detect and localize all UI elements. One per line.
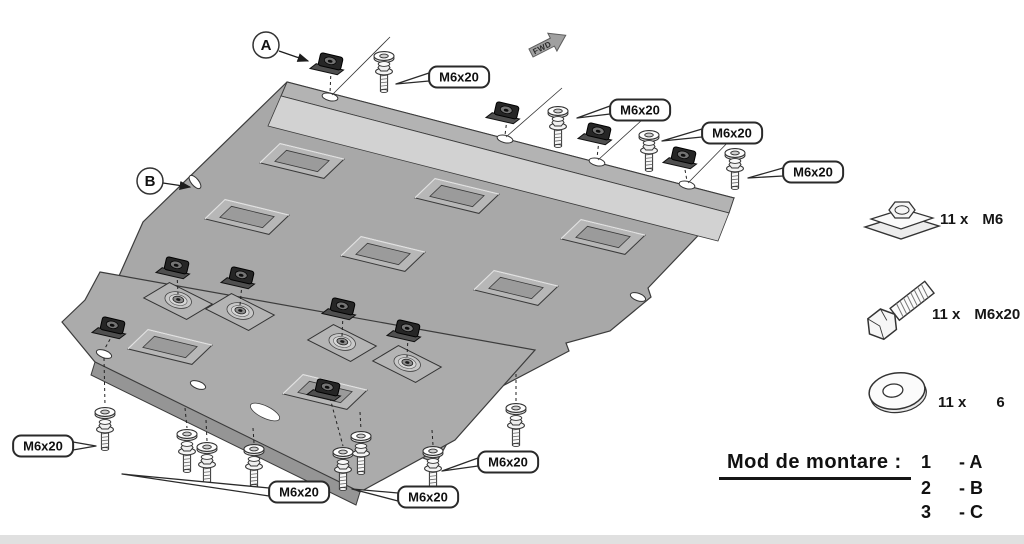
- bolt: [508, 416, 525, 447]
- mounting-step: 3: [921, 502, 959, 523]
- bolt: [641, 141, 658, 172]
- part-label-arrow: [279, 51, 308, 61]
- mounting-step: 2: [921, 478, 959, 499]
- mounting-title-underline: [719, 477, 911, 480]
- mounting-step: 1: [921, 452, 959, 473]
- direction-arrow-fwd: FWD: [526, 26, 570, 62]
- clip-nut: [578, 121, 614, 146]
- mounting-row-2: 2- B: [921, 478, 983, 499]
- fastener-callout: M6x20: [609, 99, 671, 122]
- bolt: [727, 159, 744, 190]
- bolt: [246, 457, 263, 488]
- mounting-row-1: 1- A: [921, 452, 982, 473]
- callout-tail: [73, 442, 96, 450]
- legend-washer-icon: [867, 369, 929, 416]
- bolt: [376, 62, 393, 93]
- washer: [423, 447, 443, 458]
- fastener-callout: M6x20: [12, 435, 74, 458]
- bolt: [97, 420, 114, 451]
- legend-size: 6: [966, 394, 1004, 411]
- fastener-callout: M6x20: [397, 486, 459, 509]
- washer: [95, 408, 115, 419]
- legend-qty: 11 x: [940, 211, 968, 228]
- legend-clip-nut-icon: [865, 202, 939, 239]
- legend-size: M6x20: [960, 306, 1020, 323]
- legend-qty: 11 x: [932, 306, 960, 323]
- fastener-callout: M6x20: [701, 122, 763, 145]
- fastener-callout: M6x20: [782, 161, 844, 184]
- part-label-letter: A: [261, 37, 272, 54]
- scan-edge-strip: [0, 535, 1024, 544]
- fastener-callout: M6x20: [268, 481, 330, 504]
- diagram-stage: AB FWD: [0, 0, 1024, 544]
- clip-nut: [486, 100, 522, 125]
- fwd-arrow-label: FWD: [531, 39, 553, 56]
- mounting-part: - B: [959, 478, 983, 498]
- washer: [639, 131, 659, 142]
- legend-row-hex-bolt: 11 xM6x20: [932, 306, 1020, 323]
- washer: [244, 445, 264, 456]
- fastener-callout: M6x20: [428, 66, 490, 89]
- mounting-table-title: Mod de montare :: [727, 451, 902, 474]
- washer: [548, 107, 568, 118]
- washer: [725, 149, 745, 160]
- washer: [351, 432, 371, 443]
- washer: [374, 52, 394, 63]
- part-label-letter: B: [145, 173, 156, 190]
- callout-tail: [442, 458, 478, 471]
- mounting-row-3: 3- C: [921, 502, 983, 523]
- washer: [506, 404, 526, 415]
- part-label-a: A: [253, 32, 308, 61]
- bolt: [550, 117, 567, 148]
- legend-qty: 11 x: [938, 394, 966, 411]
- washer: [177, 430, 197, 441]
- clip-nut: [663, 145, 699, 170]
- callout-tail: [577, 106, 610, 118]
- legend-row-washer: 11 x6: [938, 394, 1005, 411]
- legend-size: M6: [968, 211, 1003, 228]
- fastener-callout: M6x20: [477, 451, 539, 474]
- callout-tail: [396, 73, 429, 84]
- washer: [197, 443, 217, 454]
- callout-tail: [122, 474, 269, 496]
- callout-tail: [662, 129, 702, 141]
- legend-row-clip-nut: 11 xM6: [940, 211, 1003, 228]
- mounting-part: - A: [959, 452, 982, 472]
- bolt: [179, 442, 196, 473]
- callout-tail: [748, 168, 783, 178]
- washer: [333, 448, 353, 459]
- clip-nut: [310, 51, 346, 76]
- mounting-part: - C: [959, 502, 983, 522]
- legend-hex-bolt-icon: [862, 277, 938, 344]
